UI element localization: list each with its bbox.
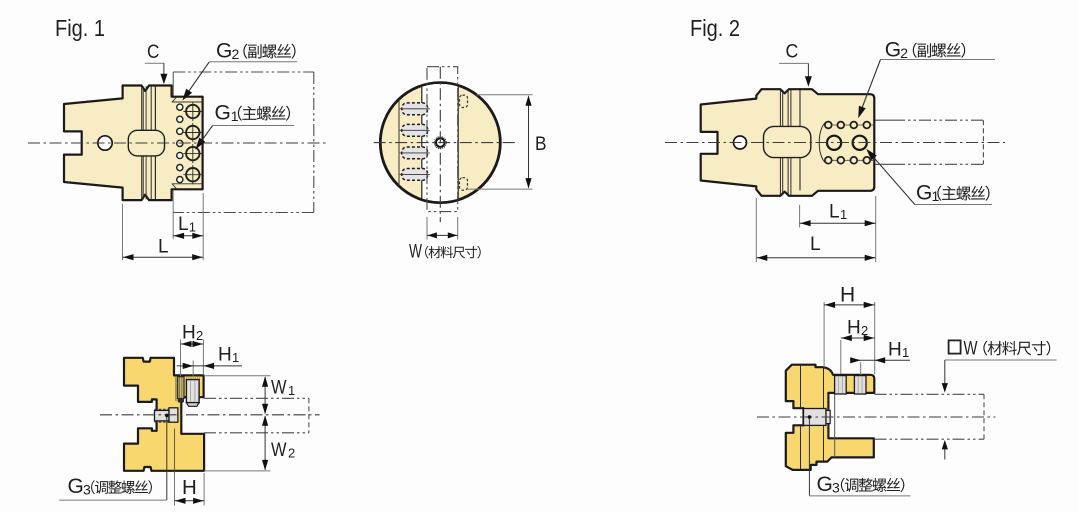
svg-text:C: C [786,41,799,63]
svg-text:2: 2 [288,446,295,461]
svg-text:W: W [964,338,978,360]
svg-text:2: 2 [861,323,868,338]
svg-text:G: G [216,40,232,63]
svg-text:H: H [840,284,855,307]
svg-text:1: 1 [840,207,847,222]
svg-text:G: G [885,39,901,62]
svg-text:G: G [817,473,833,496]
svg-text:L: L [178,214,189,235]
svg-text:W: W [271,440,287,461]
svg-text:G: G [215,102,231,125]
svg-text:Fig. 1: Fig. 1 [55,15,105,41]
svg-text:H: H [218,345,232,366]
svg-text:G: G [68,475,84,498]
svg-text:2: 2 [900,45,908,61]
svg-text:H: H [888,340,902,361]
svg-text:G: G [916,182,932,205]
svg-text:L: L [829,202,840,223]
svg-text:C: C [147,41,159,63]
svg-text:H: H [182,323,196,344]
svg-text:H: H [847,318,861,339]
svg-text:B: B [535,133,547,155]
svg-text:3: 3 [83,482,91,498]
svg-text:W: W [409,241,422,263]
svg-text:1: 1 [288,383,295,398]
svg-text:L: L [158,237,169,258]
svg-text:L: L [810,234,821,255]
svg-text:2: 2 [232,46,240,62]
svg-text:2: 2 [196,328,203,343]
svg-text:Fig. 2: Fig. 2 [690,15,740,41]
svg-text:1: 1 [231,108,239,124]
svg-text:3: 3 [832,480,840,496]
svg-text:1: 1 [189,220,196,235]
svg-text:W: W [271,378,287,399]
svg-text:H: H [182,476,197,499]
svg-text:1: 1 [232,350,239,365]
svg-text:1: 1 [902,345,909,360]
